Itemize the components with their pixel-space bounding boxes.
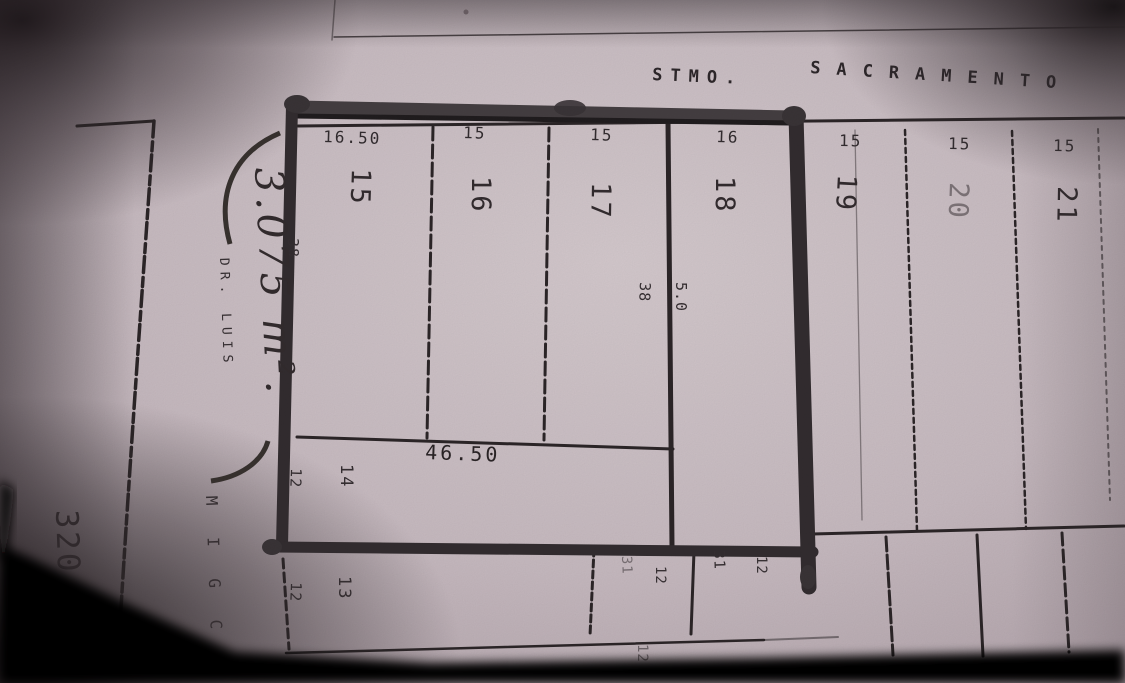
grain-overlay	[0, 0, 1125, 683]
scanned-plat-photo: STMO. SACRAMENTO 16.50 15 15 16 15 15 15…	[0, 0, 1125, 683]
plat-canvas: STMO. SACRAMENTO 16.50 15 15 16 15 15 15…	[0, 0, 1125, 683]
